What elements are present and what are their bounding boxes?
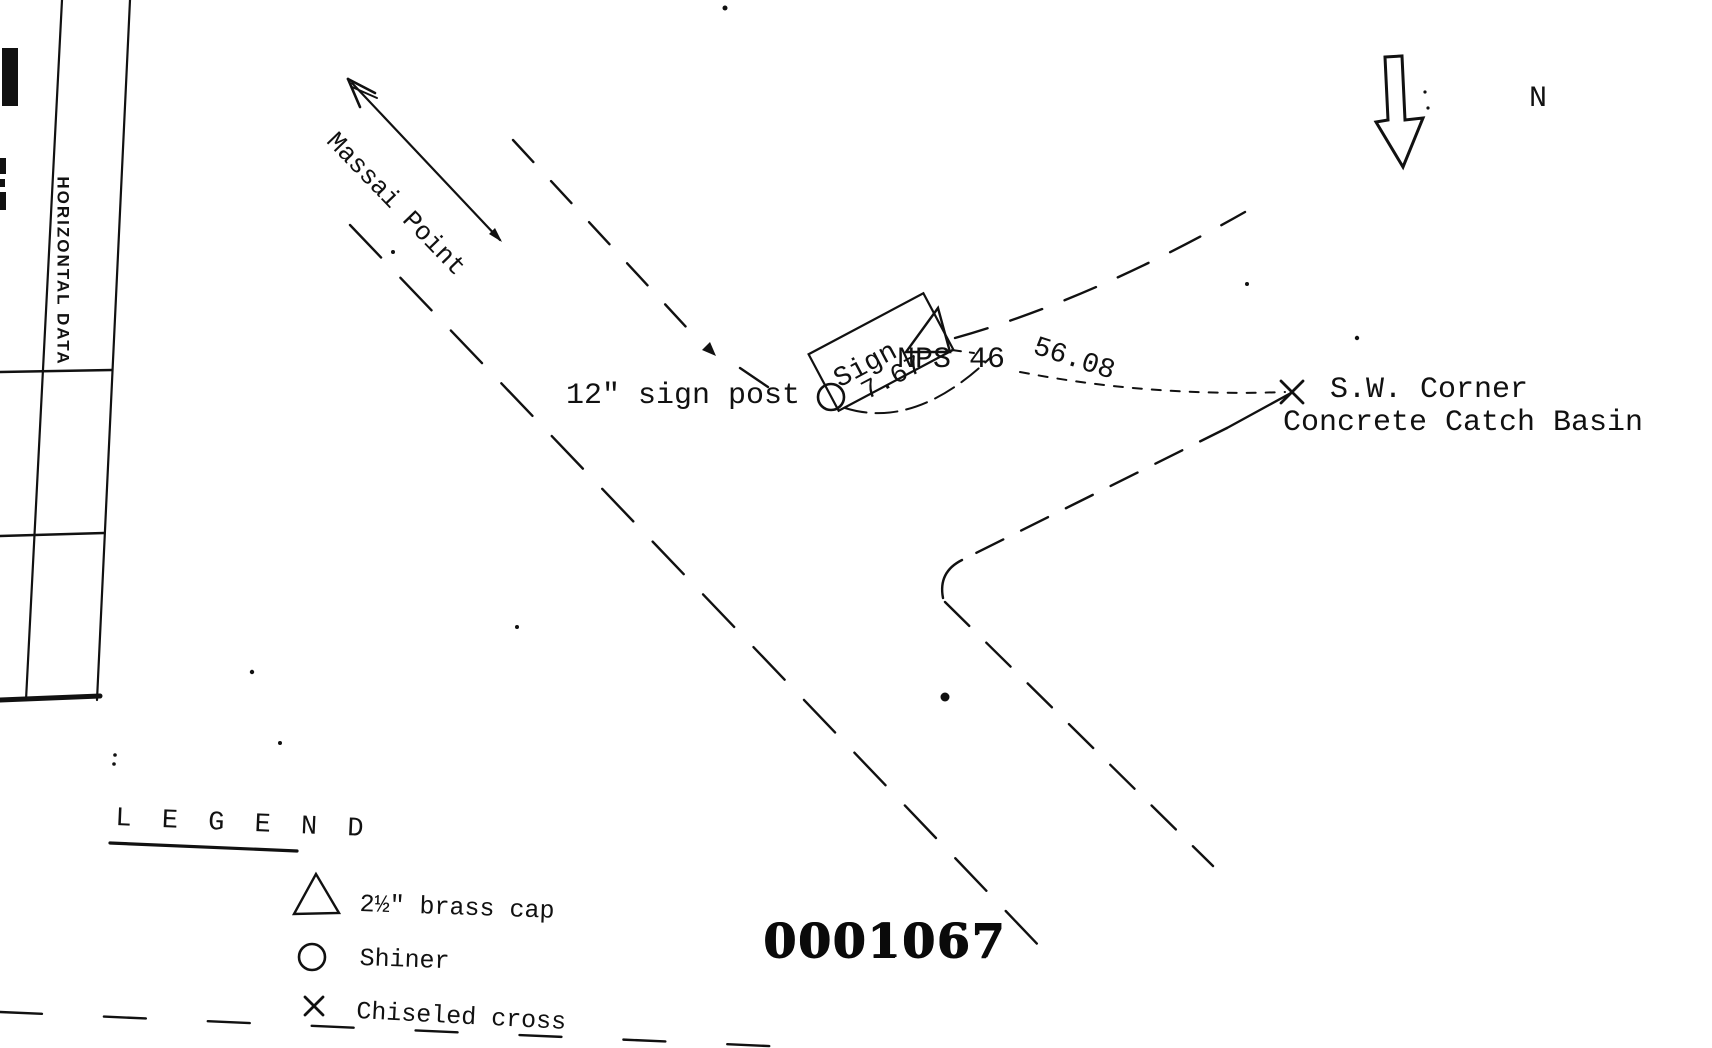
legend-item-shiner: Shiner [359,946,450,974]
legend-triangle-icon [294,874,339,914]
clipped-form-text [0,158,6,210]
north-arrow-icon [1376,56,1423,167]
road-edge-east-lower [945,602,1213,866]
road-edge-east-upper [513,140,700,342]
scan-black-bar [2,48,18,106]
legend-cross-icon [305,997,323,1015]
legend-symbols [110,843,339,1015]
tie-line-to-basin [1020,372,1285,393]
road-edge-arrowhead [702,342,716,356]
north-label: N [1529,84,1547,114]
road-edge-west [350,225,1043,950]
survey-sketch-page: HORIZONTAL DATA Massai Point N 12" sign … [0,0,1712,1048]
legend-underline [110,843,297,851]
form-column-header: HORIZONTAL DATA [55,176,72,365]
junction-corner-curve [942,560,962,598]
legend-circle-icon [299,944,325,970]
road-edge-lines [350,140,1291,950]
branch-edge-south [962,428,1227,560]
branch-edge-south-solid [1227,393,1291,428]
branch-edge-north [955,212,1245,338]
station-label: NPS 46 [897,345,1005,375]
sketch-linework [0,0,1712,1048]
basin-corner-line2: Concrete Catch Basin [1283,408,1643,438]
sign-post-label: 12" sign post [566,381,800,411]
legend-item-brass-cap: 2½" brass cap [359,892,555,924]
basin-corner-line1: S.W. Corner [1330,375,1528,405]
stamp-number: 0001067 [763,918,1006,965]
